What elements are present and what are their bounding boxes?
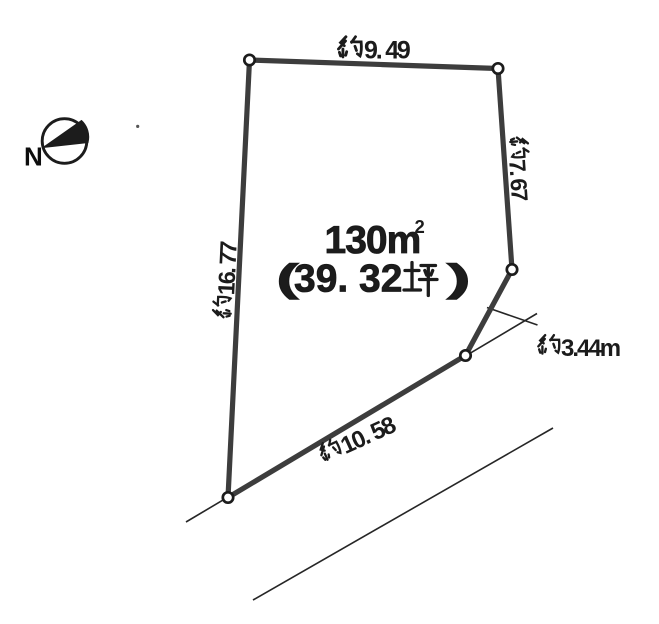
- svg-text:130m: 130m: [325, 219, 421, 262]
- svg-text:9. 49: 9. 49: [364, 37, 410, 65]
- svg-text:39. 32: 39. 32: [294, 258, 402, 301]
- svg-text:16. 77: 16. 77: [213, 240, 242, 295]
- svg-text:): ): [446, 256, 471, 300]
- svg-text:7. 67: 7. 67: [504, 158, 533, 201]
- svg-text:N: N: [24, 142, 43, 172]
- svg-text:3.44m: 3.44m: [561, 335, 620, 362]
- svg-text:2: 2: [415, 216, 425, 237]
